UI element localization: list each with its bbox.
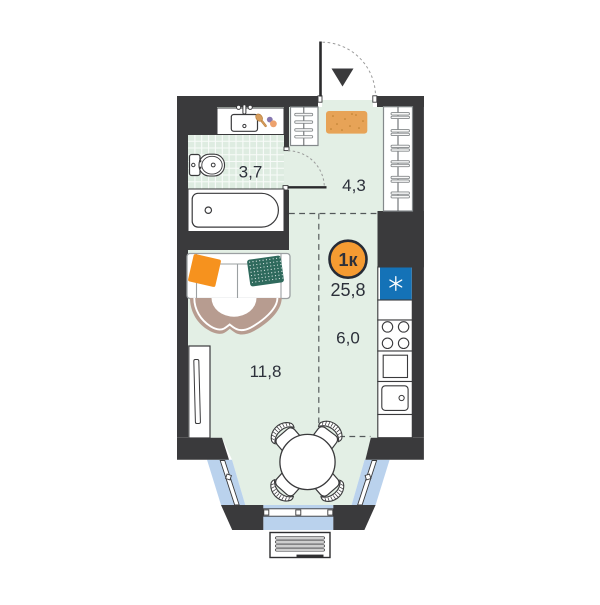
svg-text:4,3: 4,3 [342,176,366,195]
svg-text:1к: 1к [338,250,358,270]
svg-text:6,0: 6,0 [336,329,360,348]
svg-text:25,8: 25,8 [330,280,365,300]
svg-text:3,7: 3,7 [239,162,263,181]
svg-text:11,8: 11,8 [250,362,282,381]
